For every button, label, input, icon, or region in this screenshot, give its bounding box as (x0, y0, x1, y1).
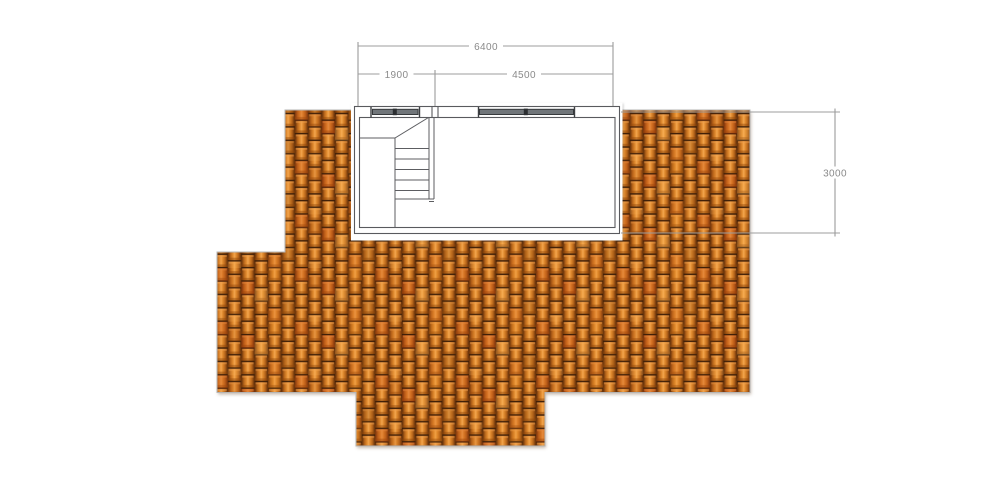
dim-label-total-width: 6400 (474, 42, 498, 53)
window-right-mullion (524, 109, 528, 116)
window-left-mullion (393, 109, 397, 116)
penthouse-room (351, 103, 623, 241)
room-white-margin (351, 103, 623, 241)
roof-plan-svg: 6400 1900 4500 3000 (0, 0, 1000, 500)
drawing-canvas: 6400 1900 4500 3000 (0, 0, 1000, 500)
dim-label-room-bay: 4500 (512, 70, 536, 81)
dim-label-stair-bay: 1900 (385, 70, 409, 81)
dim-label-room-depth: 3000 (823, 169, 847, 180)
